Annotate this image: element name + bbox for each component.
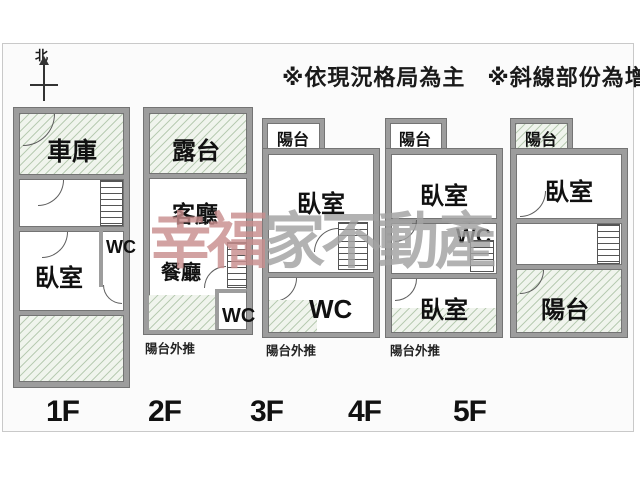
floorplan-3f: 臥室 WC — [262, 148, 380, 338]
balcony-5f-bottom-label: 陽台 — [541, 290, 589, 325]
balcony-4f-label: 陽台 — [399, 126, 431, 150]
disclaimer-part-1: ※依現況格局為主 — [282, 65, 465, 90]
stairs-2f — [227, 242, 247, 288]
dining-label: 餐廳 — [161, 256, 201, 285]
bedroom-4f-lower-label: 臥室 — [420, 290, 468, 325]
addition-area-1f — [19, 315, 124, 382]
floorplan-4f: 臥室 WC 臥室 — [385, 148, 503, 338]
north-arrow-crossbar — [30, 84, 58, 86]
wc-1f-label: WC — [106, 238, 123, 257]
stairs-4f — [470, 240, 494, 272]
floorplan-5f: 臥室 陽台 — [510, 148, 628, 338]
floor-label-4f: 4F — [348, 395, 381, 429]
disclaimer-text: ※依現況格局為主※斜線部份為增建 — [282, 60, 640, 92]
stairs-1f — [100, 180, 123, 226]
floor-label-2f: 2F — [148, 395, 181, 429]
bedroom-5f-label: 臥室 — [545, 172, 593, 207]
floorplan-2f: 露台 客廳 餐廳 WC — [143, 107, 253, 335]
pushout-caption-4f: 陽台外推 — [390, 340, 440, 359]
garage-label: 車庫 — [47, 132, 97, 168]
wc-wall — [99, 231, 103, 287]
floor-label-1f: 1F — [46, 395, 79, 429]
pushout-area-2f — [149, 295, 215, 330]
wc-3f-label: WC — [309, 294, 352, 325]
bedroom-3f-label: 臥室 — [297, 184, 345, 219]
living-label: 客廳 — [172, 195, 218, 229]
floor-label-3f: 3F — [250, 395, 283, 429]
floorplan-1f: 車庫 臥室 WC — [13, 107, 130, 388]
wc-2f-label: WC — [222, 305, 255, 328]
north-arrow-shaft — [43, 63, 45, 101]
floor-label-5f: 5F — [453, 395, 486, 429]
balcony-3f-label: 陽台 — [277, 126, 309, 150]
disclaimer-part-2: ※斜線部份為增建 — [487, 65, 640, 90]
floor-plan-image: 北 ※依現況格局為主※斜線部份為增建 車庫 臥室 WC 露台 客廳 餐廳 WC … — [0, 0, 640, 480]
bedroom-1f-label: 臥室 — [35, 258, 83, 293]
pushout-caption-2f: 陽台外推 — [145, 338, 195, 357]
balcony-5f-top-label: 陽台 — [525, 126, 557, 150]
terrace-label: 露台 — [172, 131, 220, 166]
bedroom-4f-upper-label: 臥室 — [420, 176, 468, 211]
stairs-3f — [338, 222, 368, 270]
pushout-caption-3f: 陽台外推 — [266, 340, 316, 359]
stairs-5f — [597, 224, 620, 264]
